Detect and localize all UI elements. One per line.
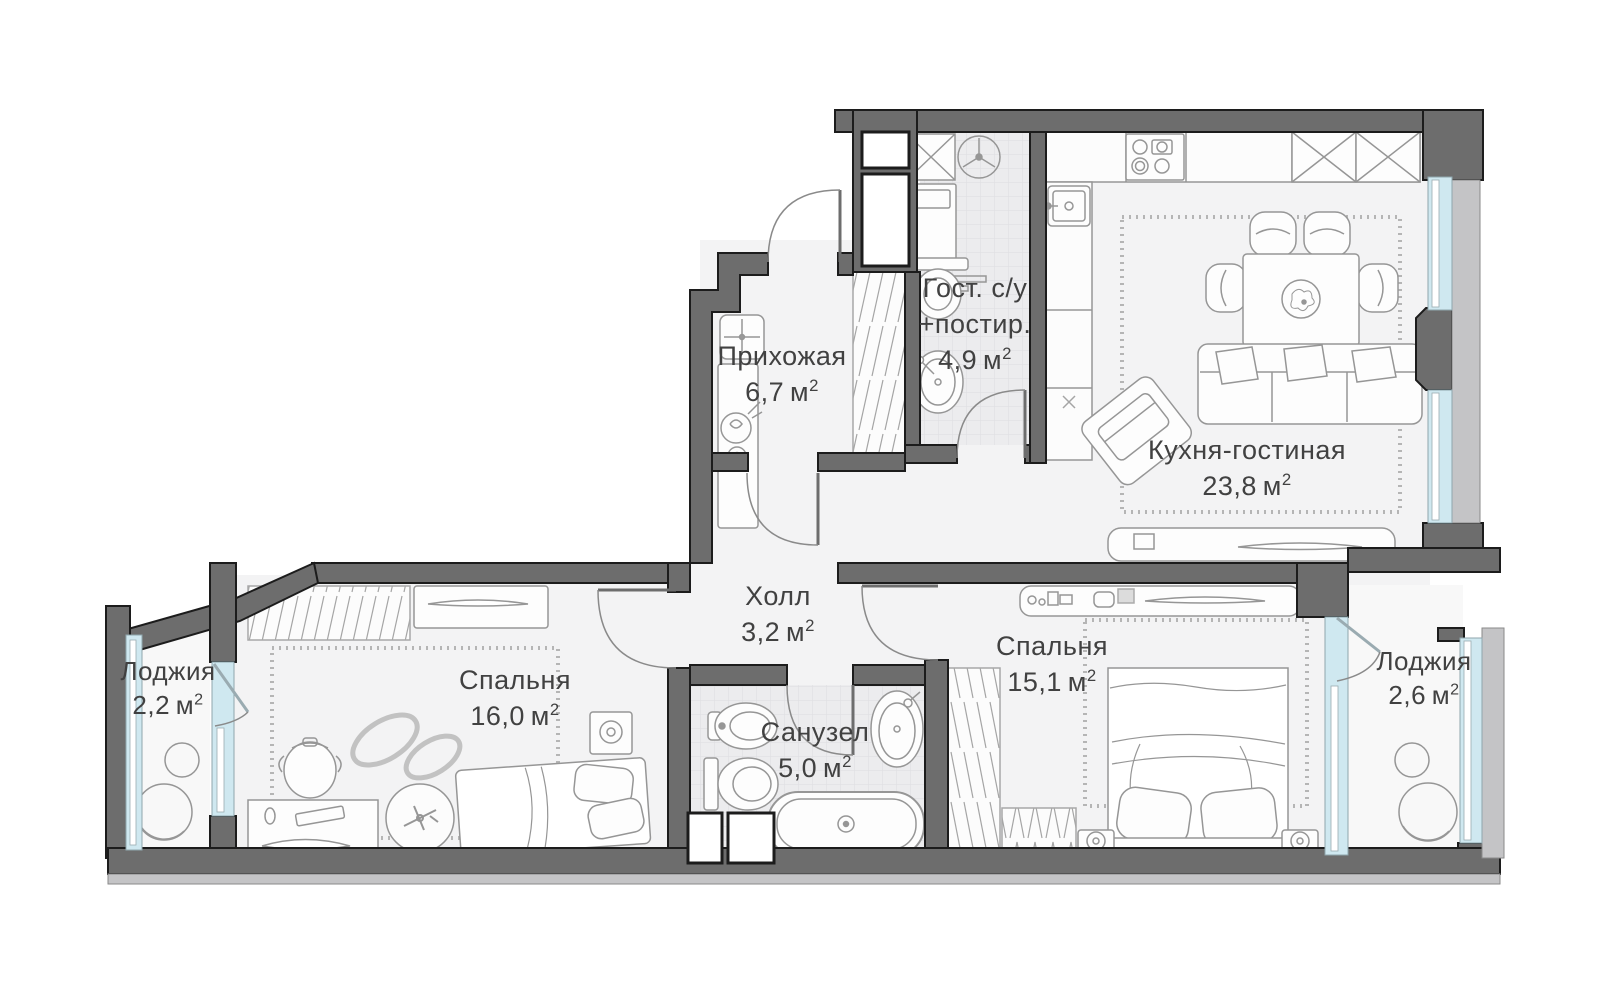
room-label-bedroom-master: Спальня 15,1 м2	[996, 628, 1108, 700]
room-area: 16,0 м2	[459, 698, 571, 734]
kitchen-window	[1428, 390, 1452, 523]
room-label-loggia-right: Лоджия 2,6 м2	[1376, 644, 1471, 712]
room-label-loggia-left: Лоджия 2,2 м2	[120, 654, 215, 722]
room-label-guest-wc: Гост. с/у +постир. 4,9 м2	[919, 270, 1032, 378]
room-name: Кухня-гостиная	[1148, 432, 1346, 468]
room-label-kitchen-living: Кухня-гостиная 23,8 м2	[1148, 432, 1346, 504]
room-label-bedroom-child: Спальня 16,0 м2	[459, 662, 571, 734]
room-label-hall: Холл 3,2 м2	[741, 578, 815, 650]
double-bed	[1102, 668, 1294, 850]
dining-table	[1243, 254, 1359, 346]
wall-bottom	[108, 848, 1500, 874]
room-area: 4,9 м2	[919, 342, 1032, 378]
bathtub	[768, 792, 924, 856]
room-name: Спальня	[459, 662, 571, 698]
floor-plan-drawing	[0, 0, 1600, 997]
single-bed	[455, 757, 651, 856]
kitchen-window	[1428, 177, 1452, 310]
floor-plan: Прихожая 6,7 м2 Гост. с/у +постир. 4,9 м…	[0, 0, 1600, 997]
room-area: 23,8 м2	[1148, 468, 1346, 504]
room-name: Спальня	[996, 628, 1108, 664]
room-area: 2,6 м2	[1376, 678, 1471, 712]
wall-top	[835, 110, 1445, 132]
room-name: Лоджия	[1376, 644, 1471, 678]
bedroom-child-dresser	[414, 586, 548, 628]
room-area: 2,2 м2	[120, 688, 215, 722]
loggia-right-floor	[1348, 585, 1463, 860]
room-name: Гост. с/у	[919, 270, 1032, 306]
sofa	[1198, 344, 1422, 424]
stove	[1126, 134, 1184, 180]
hallway-closet	[853, 270, 905, 460]
nightstand	[590, 712, 632, 754]
window-pier	[1416, 308, 1452, 390]
kitchen-cabinets	[1292, 132, 1420, 182]
room-area: 5,0 м2	[761, 750, 870, 786]
room-name: Лоджия	[120, 654, 215, 688]
bathroom-sink	[871, 691, 923, 767]
room-name-line2: +постир.	[919, 306, 1032, 342]
wall-corner-ne	[1423, 110, 1483, 180]
room-area: 6,7 м2	[717, 374, 846, 410]
kitchen-sink	[1045, 186, 1090, 226]
round-rug	[386, 784, 454, 852]
room-label-hallway: Прихожая 6,7 м2	[717, 338, 846, 410]
bedroom-master-dresser	[1020, 586, 1300, 616]
room-name: Холл	[741, 578, 815, 614]
loggia-right-top-wall	[1348, 548, 1500, 572]
room-name: Санузел	[761, 714, 870, 750]
room-area: 15,1 м2	[996, 664, 1108, 700]
room-label-bathroom: Санузел 5,0 м2	[761, 714, 870, 786]
room-name: Прихожая	[717, 338, 846, 374]
room-area: 3,2 м2	[741, 614, 815, 650]
